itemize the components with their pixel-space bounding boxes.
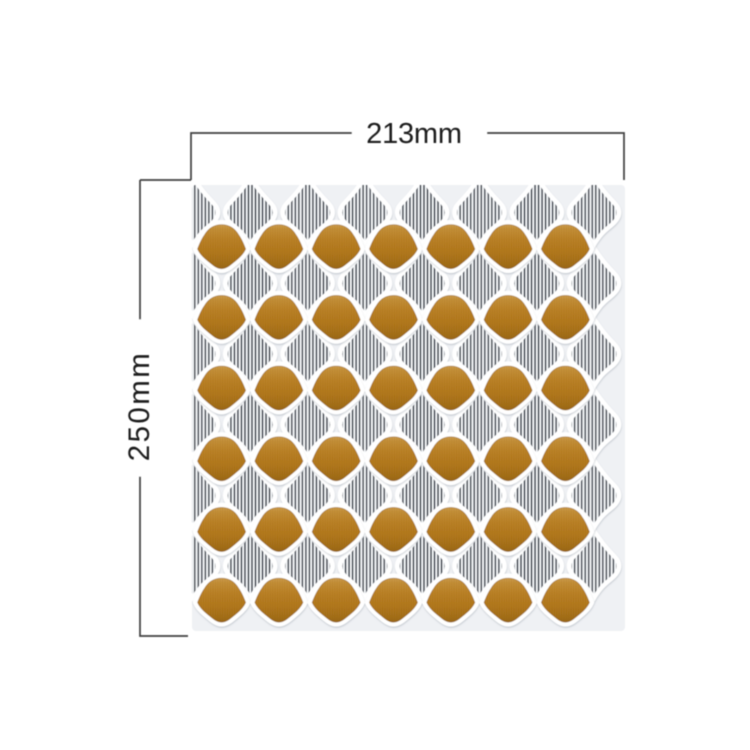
svg-text:213mm: 213mm [366,118,462,150]
svg-text:250mm: 250mm [123,351,156,461]
